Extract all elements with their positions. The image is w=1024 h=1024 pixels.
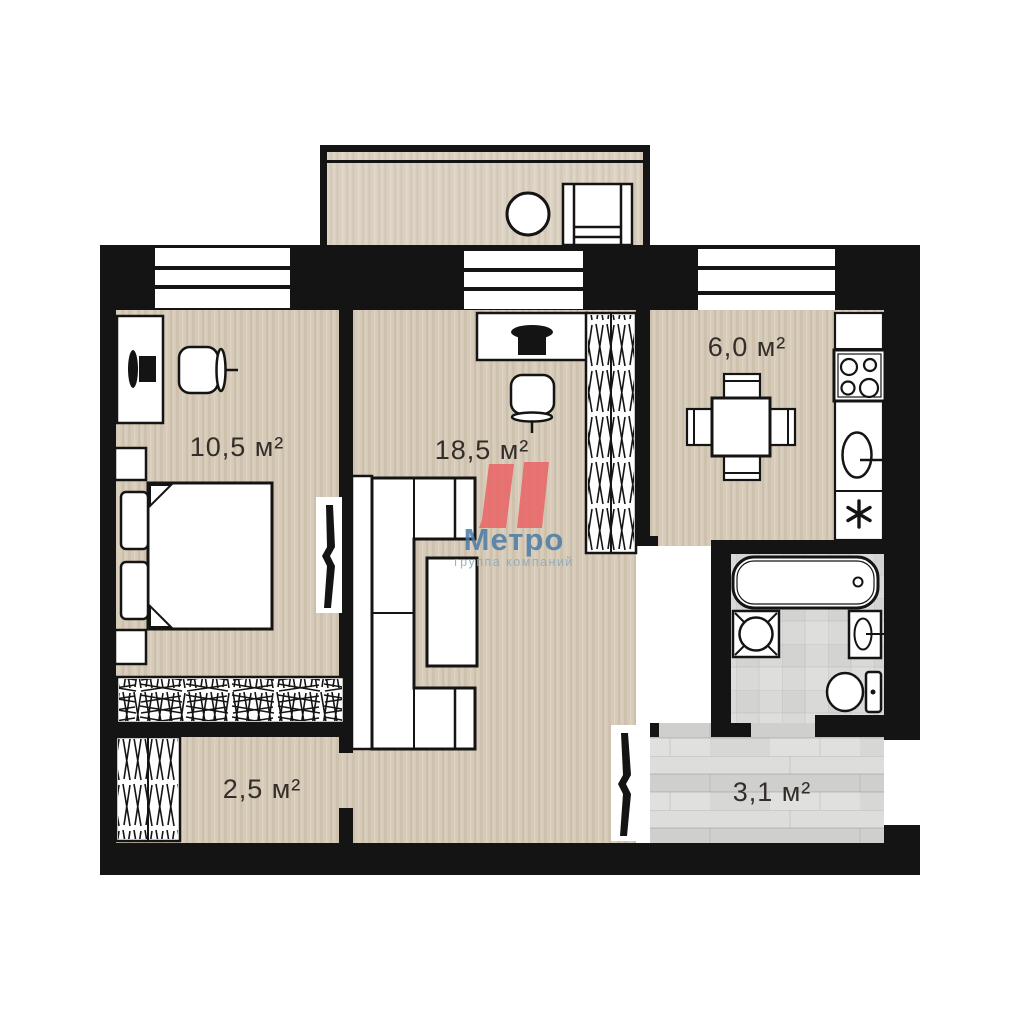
washing-machine: [733, 611, 779, 657]
hallway-furniture: [116, 737, 180, 841]
wall-bathroom-top: [711, 540, 884, 554]
balcony-round-table: [507, 193, 549, 235]
wall-left: [100, 245, 116, 875]
wall-hallway-top: [100, 723, 339, 737]
balcony-furniture: [507, 184, 632, 245]
hallway-area-label: 2,5 м²: [223, 774, 302, 804]
bathroom-sink: [849, 611, 884, 658]
balcony-wall-right: [643, 145, 650, 245]
bed: [148, 483, 272, 629]
nightstand-bottom: [115, 630, 146, 664]
nightstand-top: [115, 448, 146, 480]
bathtub: [733, 557, 878, 608]
entrance-opening: [884, 740, 920, 825]
wall-bathroom-bottom-right: [815, 715, 884, 737]
floor-plan-drawing: 10,5 м² 18,5 м² 6,0 м² 2,5 м² 3,1 м² Мет…: [0, 0, 1024, 1024]
wall-bottom: [100, 843, 920, 875]
kitchen-area-label: 6,0 м²: [708, 332, 787, 362]
balcony-wall-top: [320, 145, 650, 152]
dining-chair-top: [724, 374, 760, 400]
kitchen-window: [698, 249, 835, 310]
dining-table: [712, 398, 770, 456]
stove: [834, 350, 885, 401]
entry-pocket-door: [611, 725, 638, 841]
toilet: [827, 672, 881, 712]
pillow-1: [121, 492, 148, 549]
bedroom-window: [155, 248, 290, 308]
pillow-2: [121, 562, 148, 619]
wall-stub-bottom: [339, 808, 353, 843]
living-window: [464, 251, 583, 309]
dining-chair-right: [769, 409, 795, 445]
dining-chair-left: [687, 409, 713, 445]
balcony-glazing-line: [327, 160, 643, 163]
hallway-opening-floor: [338, 753, 354, 808]
wall-bathroom-left: [711, 540, 731, 723]
wall-kitchen-living: [636, 310, 650, 546]
wall-entry-stub: [650, 723, 659, 737]
bedroom-area-label: 10,5 м²: [190, 432, 285, 462]
dining-chair-bottom: [724, 454, 760, 480]
bedroom-pocket-door: [316, 497, 342, 613]
floor-plan-page: 10,5 м² 18,5 м² 6,0 м² 2,5 м² 3,1 м² Мет…: [0, 0, 1024, 1024]
wall-kitchen-living-foot: [636, 536, 658, 546]
living-area-label: 18,5 м²: [435, 435, 530, 465]
hallway-closet: [116, 737, 180, 841]
logo-subtitle: группа компаний: [454, 555, 574, 569]
bedroom-wardrobe: [117, 677, 344, 723]
coffee-table: [427, 558, 477, 666]
living-wardrobe: [586, 313, 636, 553]
balcony-chair: [563, 184, 632, 245]
wall-bathroom-bottom-left: [711, 723, 751, 737]
balcony-wall-left: [320, 145, 327, 245]
logo-name: Метро: [464, 522, 565, 557]
entry-area-label: 3,1 м²: [733, 777, 812, 807]
